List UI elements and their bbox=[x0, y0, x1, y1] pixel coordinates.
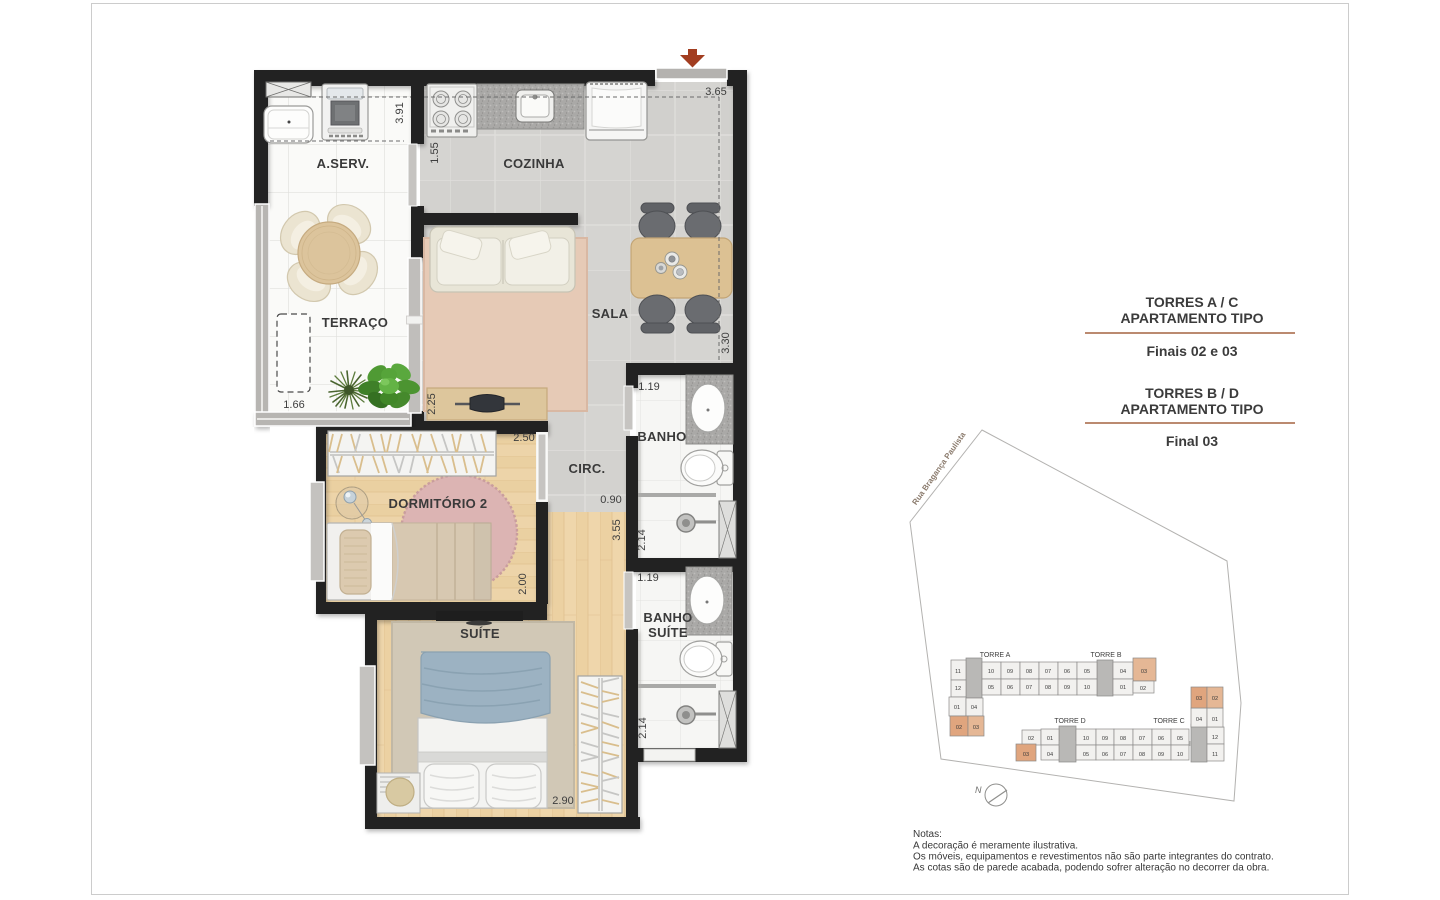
svg-text:04: 04 bbox=[1047, 752, 1053, 758]
svg-text:01: 01 bbox=[1120, 685, 1126, 691]
svg-text:12: 12 bbox=[1212, 735, 1218, 741]
svg-text:09: 09 bbox=[1064, 685, 1070, 691]
svg-text:TORRE D: TORRE D bbox=[1054, 718, 1085, 725]
svg-text:08: 08 bbox=[1045, 685, 1051, 691]
svg-text:11: 11 bbox=[1212, 752, 1218, 758]
svg-text:Finais 02 e 03: Finais 02 e 03 bbox=[1146, 343, 1237, 359]
svg-text:1.19: 1.19 bbox=[638, 381, 659, 393]
svg-text:07: 07 bbox=[1045, 669, 1051, 675]
svg-text:05: 05 bbox=[1084, 669, 1090, 675]
svg-text:03: 03 bbox=[1196, 696, 1202, 702]
svg-text:A.SERV.: A.SERV. bbox=[317, 156, 370, 171]
svg-text:03: 03 bbox=[1141, 669, 1147, 675]
svg-text:06: 06 bbox=[1064, 669, 1070, 675]
svg-text:2.14: 2.14 bbox=[636, 529, 648, 550]
svg-text:3.55: 3.55 bbox=[611, 519, 623, 540]
svg-text:07: 07 bbox=[1120, 752, 1126, 758]
svg-text:2.25: 2.25 bbox=[426, 393, 438, 414]
svg-text:As cotas são de parede acabada: As cotas são de parede acabada, podendo … bbox=[913, 863, 1269, 874]
svg-text:02: 02 bbox=[1212, 696, 1218, 702]
svg-text:APARTAMENTO TIPO: APARTAMENTO TIPO bbox=[1120, 401, 1263, 417]
svg-text:SALA: SALA bbox=[592, 306, 629, 321]
svg-text:02: 02 bbox=[956, 725, 962, 731]
svg-text:N: N bbox=[975, 785, 982, 795]
svg-text:08: 08 bbox=[1139, 752, 1145, 758]
svg-text:02: 02 bbox=[1140, 686, 1146, 692]
svg-text:DORMITÓRIO 2: DORMITÓRIO 2 bbox=[389, 496, 488, 511]
svg-text:04: 04 bbox=[1120, 669, 1126, 675]
svg-text:03: 03 bbox=[973, 725, 979, 731]
svg-text:06: 06 bbox=[1102, 752, 1108, 758]
svg-text:11: 11 bbox=[955, 669, 961, 675]
svg-text:TORRE B: TORRE B bbox=[1091, 652, 1122, 659]
svg-text:2.14: 2.14 bbox=[637, 717, 649, 738]
svg-text:Os móveis, equipamentos e reve: Os móveis, equipamentos e revestimentos … bbox=[913, 852, 1274, 863]
svg-text:06: 06 bbox=[1007, 685, 1013, 691]
svg-text:2.00: 2.00 bbox=[517, 573, 529, 594]
svg-text:Final 03: Final 03 bbox=[1166, 433, 1218, 449]
svg-text:BANHO: BANHO bbox=[643, 610, 692, 625]
svg-text:09: 09 bbox=[1102, 736, 1108, 742]
svg-text:CIRC.: CIRC. bbox=[569, 461, 606, 476]
svg-text:05: 05 bbox=[988, 685, 994, 691]
svg-text:1.55: 1.55 bbox=[429, 142, 441, 163]
svg-text:1.19: 1.19 bbox=[637, 572, 658, 584]
svg-text:08: 08 bbox=[1026, 669, 1032, 675]
svg-text:07: 07 bbox=[1026, 685, 1032, 691]
svg-text:TORRE C: TORRE C bbox=[1153, 718, 1184, 725]
svg-text:09: 09 bbox=[1007, 669, 1013, 675]
svg-text:01: 01 bbox=[954, 705, 960, 711]
svg-text:10: 10 bbox=[1084, 685, 1090, 691]
svg-text:05: 05 bbox=[1083, 752, 1089, 758]
svg-text:01: 01 bbox=[1212, 717, 1218, 723]
svg-text:TORRES B / D: TORRES B / D bbox=[1145, 385, 1239, 401]
svg-text:2.90: 2.90 bbox=[552, 795, 573, 807]
svg-text:SUÍTE: SUÍTE bbox=[648, 625, 688, 640]
svg-text:04: 04 bbox=[1196, 717, 1202, 723]
svg-text:01: 01 bbox=[1047, 736, 1053, 742]
svg-text:10: 10 bbox=[1083, 736, 1089, 742]
svg-text:COZINHA: COZINHA bbox=[503, 156, 565, 171]
svg-text:3.65: 3.65 bbox=[705, 86, 726, 98]
svg-text:SUÍTE: SUÍTE bbox=[460, 626, 500, 641]
svg-text:05: 05 bbox=[1177, 736, 1183, 742]
svg-text:03: 03 bbox=[1023, 752, 1029, 758]
svg-text:A decoração é meramente ilustr: A decoração é meramente ilustrativa. bbox=[913, 841, 1078, 852]
svg-text:04: 04 bbox=[971, 705, 977, 711]
svg-text:0.90: 0.90 bbox=[600, 494, 621, 506]
svg-text:TORRES A / C: TORRES A / C bbox=[1146, 294, 1239, 310]
svg-text:2.50: 2.50 bbox=[513, 432, 534, 444]
svg-text:Notas:: Notas: bbox=[913, 829, 942, 840]
svg-text:10: 10 bbox=[988, 669, 994, 675]
svg-text:3.30: 3.30 bbox=[720, 332, 732, 353]
svg-text:09: 09 bbox=[1158, 752, 1164, 758]
svg-text:02: 02 bbox=[1028, 736, 1034, 742]
svg-text:08: 08 bbox=[1120, 736, 1126, 742]
svg-text:BANHO: BANHO bbox=[637, 429, 686, 444]
svg-text:10: 10 bbox=[1177, 752, 1183, 758]
svg-text:3.91: 3.91 bbox=[394, 102, 406, 123]
svg-text:APARTAMENTO TIPO: APARTAMENTO TIPO bbox=[1120, 310, 1263, 326]
svg-text:TORRE A: TORRE A bbox=[980, 652, 1011, 659]
svg-text:1.66: 1.66 bbox=[283, 399, 304, 411]
svg-text:TERRAÇO: TERRAÇO bbox=[322, 315, 388, 330]
svg-text:07: 07 bbox=[1139, 736, 1145, 742]
svg-text:06: 06 bbox=[1158, 736, 1164, 742]
svg-text:12: 12 bbox=[955, 686, 961, 692]
